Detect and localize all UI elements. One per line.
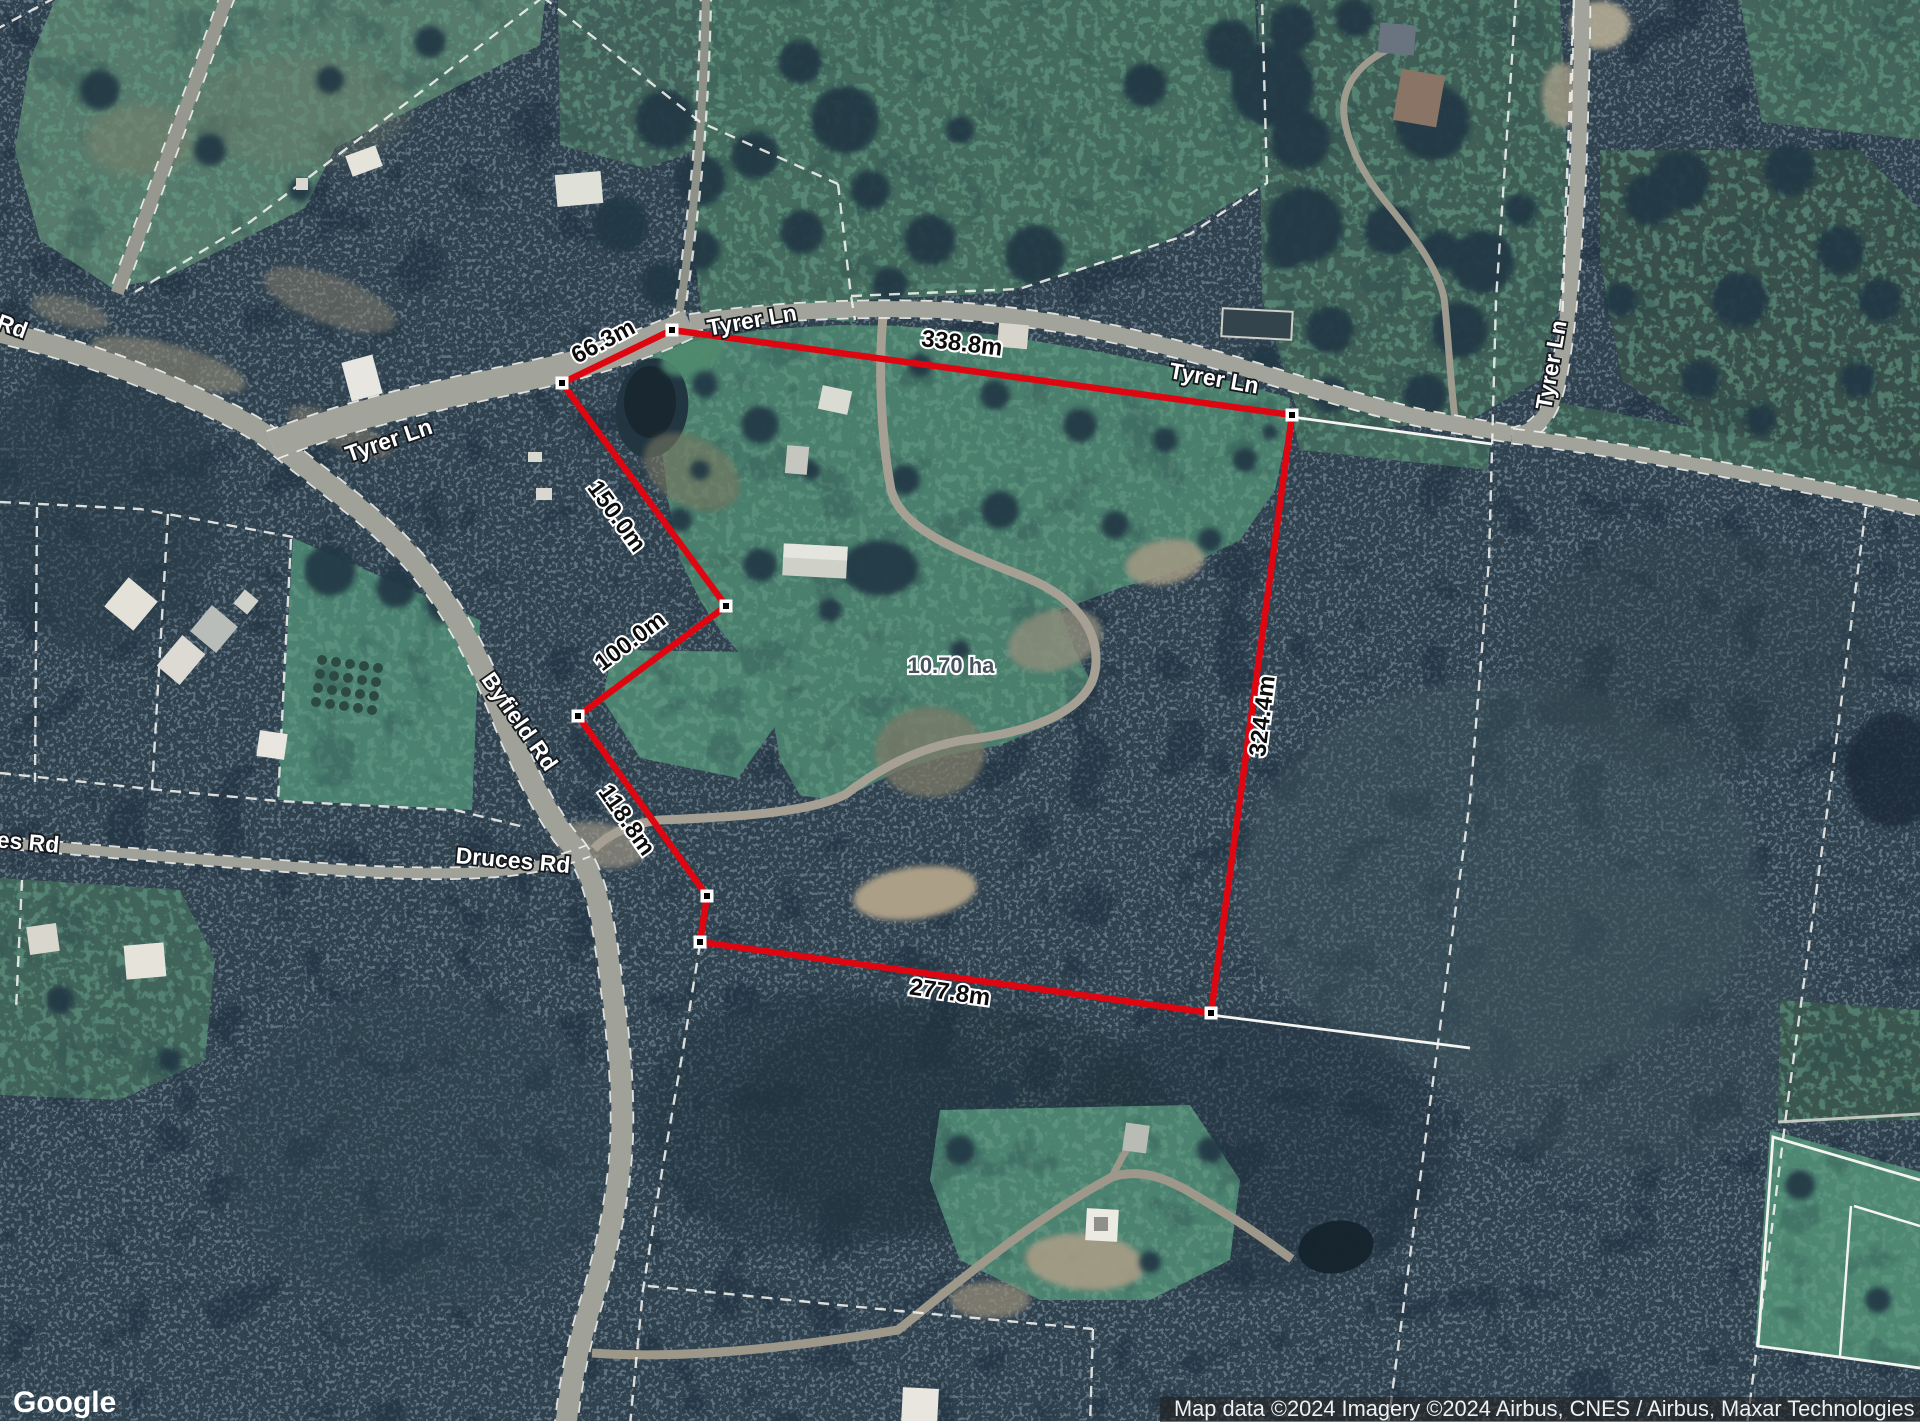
svg-text:es Rd: es Rd (0, 826, 60, 857)
svg-text:Google: Google (13, 1386, 116, 1419)
svg-text:Map data ©2024 Imagery ©2024 A: Map data ©2024 Imagery ©2024 Airbus, CNE… (1174, 1396, 1915, 1421)
svg-text:10.70 ha: 10.70 ha (908, 653, 996, 678)
